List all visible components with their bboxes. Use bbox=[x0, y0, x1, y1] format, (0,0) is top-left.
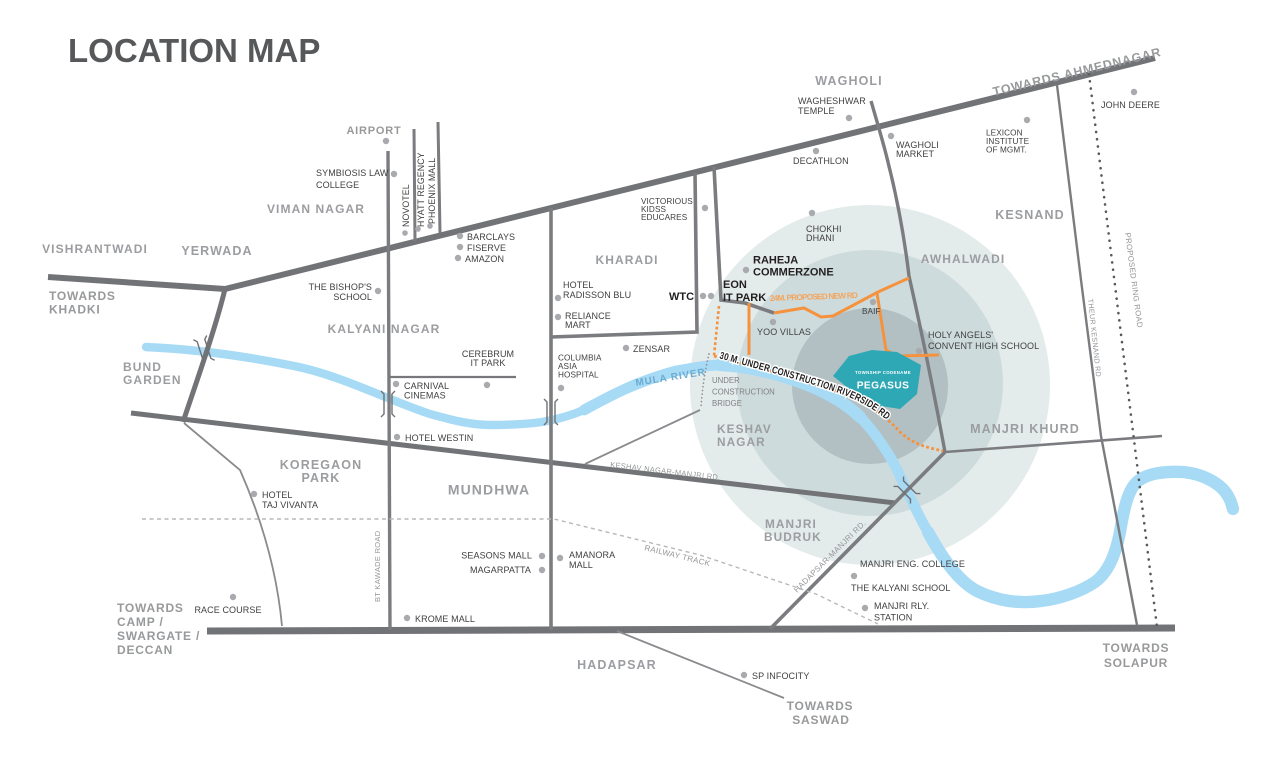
svg-text:MARKET: MARKET bbox=[896, 149, 935, 159]
svg-text:KHARADI: KHARADI bbox=[595, 253, 658, 267]
svg-text:HOTEL: HOTEL bbox=[262, 490, 293, 500]
svg-text:HOSPITAL: HOSPITAL bbox=[558, 371, 599, 380]
svg-text:IT PARK: IT PARK bbox=[723, 292, 766, 304]
svg-text:KESHAV: KESHAV bbox=[717, 422, 772, 436]
svg-text:MART: MART bbox=[565, 320, 591, 330]
svg-text:TOWARDS: TOWARDS bbox=[49, 289, 116, 303]
svg-text:VISHRANTWADI: VISHRANTWADI bbox=[42, 242, 148, 256]
svg-text:COLLEGE: COLLEGE bbox=[316, 180, 359, 190]
svg-text:TOWARDS: TOWARDS bbox=[117, 601, 184, 615]
svg-text:HYATT REGENCY: HYATT REGENCY bbox=[416, 152, 426, 227]
svg-text:KOREGAON: KOREGAON bbox=[280, 458, 362, 472]
svg-text:AWHALWADI: AWHALWADI bbox=[921, 252, 1006, 266]
svg-text:YERWADA: YERWADA bbox=[181, 244, 252, 258]
svg-text:VIMAN NAGAR: VIMAN NAGAR bbox=[267, 202, 365, 216]
svg-text:THE BISHOP'S: THE BISHOP'S bbox=[309, 282, 372, 292]
svg-text:SEASONS MALL: SEASONS MALL bbox=[461, 551, 532, 561]
svg-text:AIRPORT: AIRPORT bbox=[346, 125, 401, 137]
svg-text:HOTEL: HOTEL bbox=[563, 280, 594, 290]
svg-text:KALYANI NAGAR: KALYANI NAGAR bbox=[328, 322, 441, 336]
svg-text:BRIDGE: BRIDGE bbox=[712, 399, 742, 408]
svg-text:BAIF: BAIF bbox=[862, 307, 881, 316]
svg-text:RACE COURSE: RACE COURSE bbox=[194, 605, 261, 615]
svg-text:BUND: BUND bbox=[123, 360, 162, 374]
svg-text:WTC: WTC bbox=[669, 291, 694, 303]
svg-text:DHANI: DHANI bbox=[806, 233, 835, 243]
svg-text:STATION: STATION bbox=[874, 613, 912, 623]
svg-text:MANJRI: MANJRI bbox=[765, 517, 817, 531]
svg-text:HOTEL WESTIN: HOTEL WESTIN bbox=[405, 433, 473, 443]
svg-text:MANJRI ENG. COLLEGE: MANJRI ENG. COLLEGE bbox=[860, 559, 965, 569]
svg-text:COMMERZONE: COMMERZONE bbox=[753, 267, 834, 279]
svg-text:RAHEJA: RAHEJA bbox=[753, 255, 798, 267]
svg-text:WAGHOLI: WAGHOLI bbox=[815, 74, 882, 88]
svg-text:TEMPLE: TEMPLE bbox=[798, 106, 835, 116]
svg-text:TOWNSHIP CODENAME: TOWNSHIP CODENAME bbox=[855, 370, 911, 375]
svg-text:IT PARK: IT PARK bbox=[471, 358, 506, 368]
svg-text:TAJ VIVANTA: TAJ VIVANTA bbox=[262, 500, 318, 510]
svg-text:RADISSON BLU: RADISSON BLU bbox=[563, 290, 631, 300]
svg-text:CINEMAS: CINEMAS bbox=[404, 391, 446, 401]
svg-text:NOVOTEL: NOVOTEL bbox=[401, 184, 411, 227]
svg-text:TOWARDS: TOWARDS bbox=[1103, 641, 1170, 655]
svg-text:WAGHESHWAR: WAGHESHWAR bbox=[798, 96, 866, 106]
svg-text:GARDEN: GARDEN bbox=[123, 373, 182, 387]
svg-text:SCHOOL: SCHOOL bbox=[333, 292, 372, 302]
svg-text:MANJRI KHURD: MANJRI KHURD bbox=[970, 422, 1080, 436]
svg-text:JOHN DEERE: JOHN DEERE bbox=[1101, 100, 1160, 110]
svg-text:KESNAND: KESNAND bbox=[995, 208, 1065, 222]
svg-text:CONSTRUCTION: CONSTRUCTION bbox=[712, 388, 775, 397]
svg-text:SWARGATE /: SWARGATE / bbox=[117, 629, 200, 643]
svg-text:HADAPSAR: HADAPSAR bbox=[577, 658, 657, 672]
svg-text:PARK: PARK bbox=[302, 471, 341, 485]
svg-text:CONVENT HIGH SCHOOL: CONVENT HIGH SCHOOL bbox=[928, 341, 1039, 351]
svg-text:PEGASUS: PEGASUS bbox=[857, 381, 910, 392]
svg-text:SASWAD: SASWAD bbox=[792, 713, 849, 727]
svg-text:ZENSAR: ZENSAR bbox=[633, 344, 671, 354]
svg-text:SYMBIOSIS LAW: SYMBIOSIS LAW bbox=[316, 168, 389, 178]
svg-text:SOLAPUR: SOLAPUR bbox=[1104, 656, 1168, 670]
svg-text:BT KAWADE ROAD: BT KAWADE ROAD bbox=[373, 530, 382, 602]
svg-text:AMANORA: AMANORA bbox=[569, 550, 615, 560]
svg-text:DECATHLON: DECATHLON bbox=[793, 156, 849, 166]
svg-text:SP INFOCITY: SP INFOCITY bbox=[752, 671, 809, 681]
svg-text:UNDER: UNDER bbox=[712, 376, 740, 385]
svg-text:MALL: MALL bbox=[569, 560, 593, 570]
svg-text:FISERVE: FISERVE bbox=[467, 243, 506, 253]
svg-text:PHOENIX MALL: PHOENIX MALL bbox=[427, 158, 437, 224]
svg-text:MANJRI RLY.: MANJRI RLY. bbox=[874, 601, 929, 611]
svg-text:THE KALYANI SCHOOL: THE KALYANI SCHOOL bbox=[851, 583, 951, 593]
svg-text:CAMP /: CAMP / bbox=[117, 615, 164, 629]
svg-text:DECCAN: DECCAN bbox=[117, 643, 173, 657]
svg-text:BARCLAYS: BARCLAYS bbox=[467, 232, 515, 242]
svg-text:KHADKI: KHADKI bbox=[49, 303, 100, 317]
svg-text:OF MGMT.: OF MGMT. bbox=[986, 146, 1027, 155]
svg-text:CARNIVAL: CARNIVAL bbox=[404, 381, 449, 391]
svg-text:NAGAR: NAGAR bbox=[717, 435, 766, 449]
svg-text:TOWARDS: TOWARDS bbox=[787, 699, 854, 713]
svg-text:MAGARPATTA: MAGARPATTA bbox=[470, 565, 531, 575]
svg-text:BUDRUK: BUDRUK bbox=[764, 530, 822, 544]
svg-text:AMAZON: AMAZON bbox=[465, 254, 504, 264]
svg-text:KROME MALL: KROME MALL bbox=[415, 614, 475, 624]
svg-text:EON: EON bbox=[723, 279, 747, 291]
svg-text:LOCATION MAP: LOCATION MAP bbox=[68, 32, 320, 69]
svg-text:HOLY ANGELS': HOLY ANGELS' bbox=[928, 330, 993, 340]
svg-text:YOO VILLAS: YOO VILLAS bbox=[757, 327, 811, 337]
svg-text:EDUCARES: EDUCARES bbox=[641, 213, 688, 222]
svg-text:MUNDHWA: MUNDHWA bbox=[448, 482, 530, 498]
